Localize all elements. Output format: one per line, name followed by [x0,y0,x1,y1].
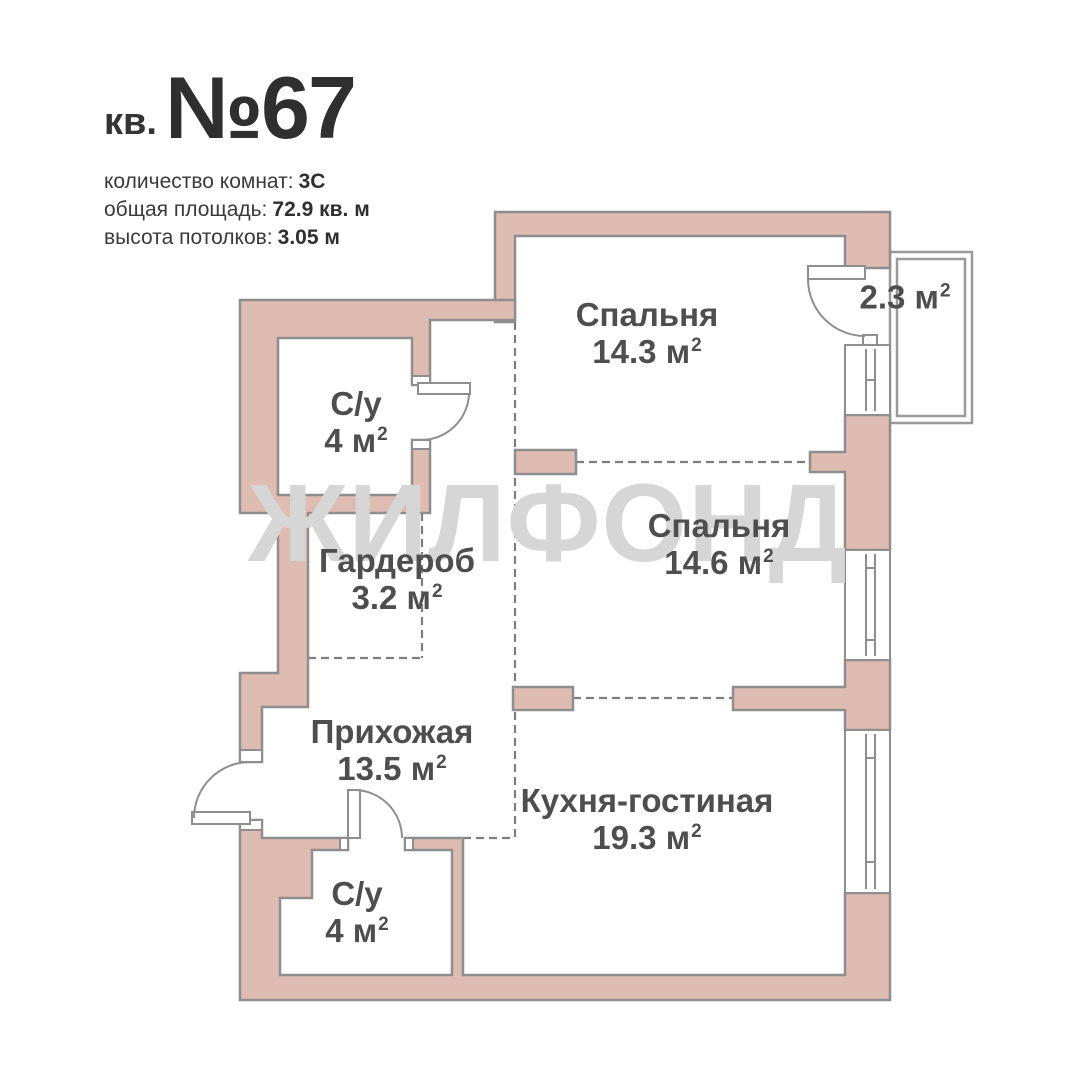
jamb-bathroom-bottom-a [340,838,348,850]
door-bathroom-top [418,383,470,440]
info-ceiling-label: высота потолков: [104,226,273,249]
room-name: Прихожая [311,713,474,750]
floorplan-page: кв. №67 количество комнат:3С общая площа… [0,0,1080,1080]
door-bathroom-bottom [348,790,402,838]
apartment-info: количество комнат:3С общая площадь:72.9 … [104,168,370,252]
room-name: С/у [325,875,389,912]
room-name: Кухня-гостиная [521,782,774,819]
room-area: 19.3 м2 [521,819,774,862]
info-area-value: 72.9 кв. м [272,198,369,221]
area-superscript: 2 [436,752,447,773]
info-ceiling-value: 3.05 м [278,226,340,249]
info-area: общая площадь:72.9 кв. м [104,196,370,224]
info-rooms-label: количество комнат: [104,170,294,193]
window-balcony [845,345,890,415]
area-superscript: 2 [940,281,951,302]
room-label-kitchen-living: Кухня-гостиная 19.3 м2 [521,782,774,862]
wall-right-middle [733,660,890,730]
area-superscript: 2 [763,546,774,567]
area-superscript: 2 [691,821,702,842]
apartment-prefix: кв. [104,101,157,150]
door-balcony [808,266,865,336]
room-area: 14.6 м2 [648,544,791,587]
room-label-bathroom-bottom: С/у 4 м2 [325,875,389,955]
room-label-balcony: 2.3 м2 [859,279,950,322]
apartment-number: №67 [165,66,355,150]
room-area: 13.5 м2 [311,750,474,793]
jamb-balcony-door [863,335,877,345]
door-entrance [192,762,250,824]
info-area-label: общая площадь: [104,198,267,221]
info-rooms-value: 3С [299,170,326,193]
apartment-title: кв. №67 [104,66,370,150]
jamb-bathroom-top-b [412,440,430,449]
room-label-wardrobe: Гардероб 3.2 м2 [319,542,475,622]
window-kitchen [845,730,890,893]
room-name: С/у [324,385,388,422]
header: кв. №67 количество комнат:3С общая площа… [104,66,370,252]
info-ceiling: высота потолков:3.05 м [104,224,370,252]
room-name: Спальня [576,296,719,333]
area-superscript: 2 [377,424,388,445]
jamb-bathroom-bottom-b [405,838,413,850]
area-superscript: 2 [691,335,702,356]
room-label-hallway: Прихожая 13.5 м2 [311,713,474,793]
room-area: 4 м2 [325,912,389,955]
wall-stub-kitchen [513,687,573,710]
room-label-bedroom-2: Спальня 14.6 м2 [648,507,791,587]
area-superscript: 2 [378,914,389,935]
room-name: Спальня [648,507,791,544]
room-area: 3.2 м2 [319,579,475,622]
room-label-bedroom-1: Спальня 14.3 м2 [576,296,719,376]
room-area: 14.3 м2 [576,333,719,376]
window-bedroom-2 [845,550,890,660]
jamb-entrance-top [240,750,262,762]
room-label-bathroom-top: С/у 4 м2 [324,385,388,465]
room-area: 2.3 м2 [859,279,950,322]
room-name: Гардероб [319,542,475,579]
room-area: 4 м2 [324,422,388,465]
info-rooms: количество комнат:3С [104,168,370,196]
area-superscript: 2 [432,581,443,602]
